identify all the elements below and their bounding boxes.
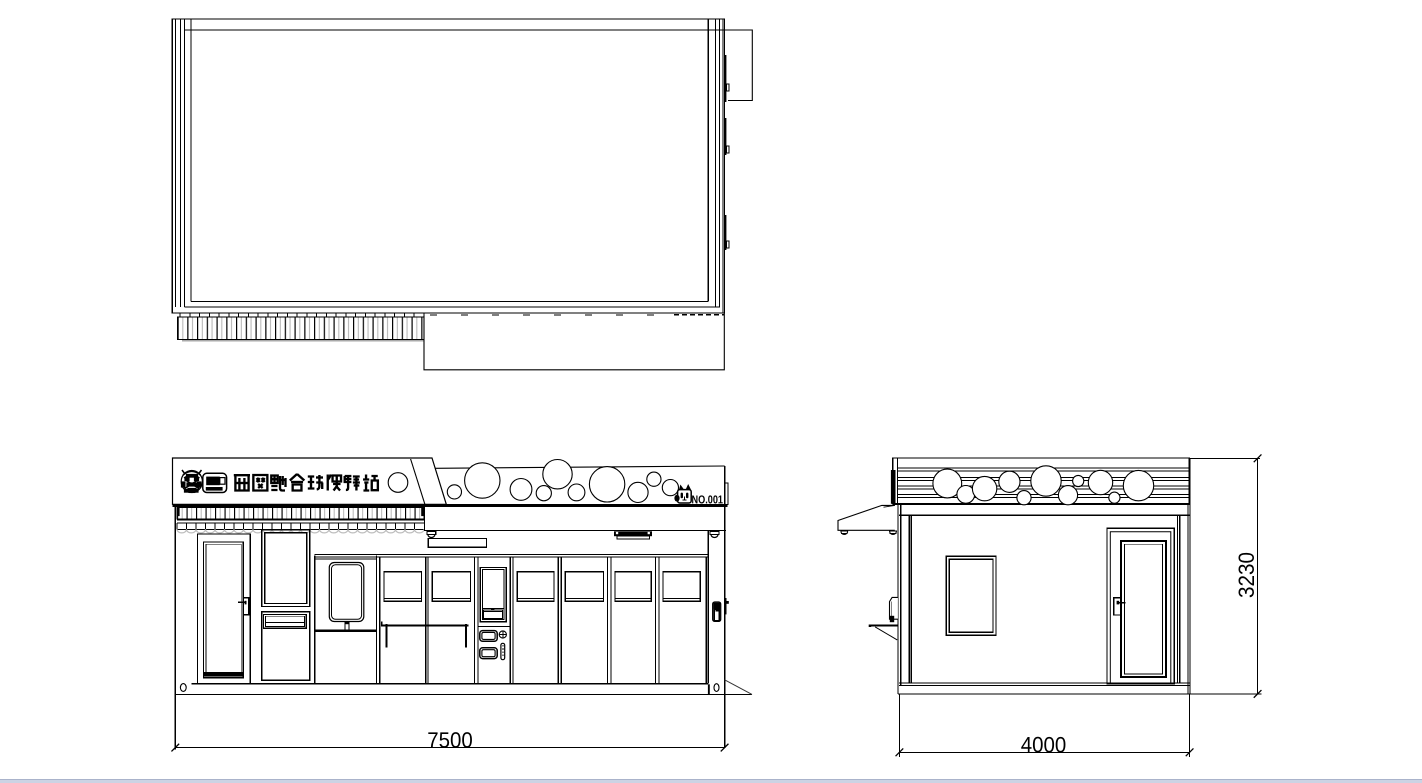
svg-text:3230: 3230 [1234,552,1259,598]
svg-text:NO.001: NO.001 [691,494,723,506]
svg-text:7500: 7500 [427,727,473,752]
svg-text:4000: 4000 [1021,732,1067,757]
